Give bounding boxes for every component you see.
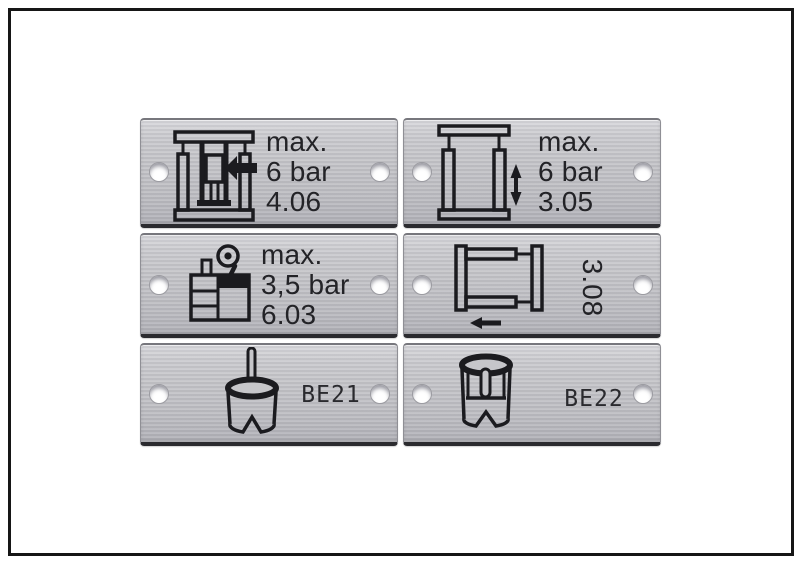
label-plates-grid: max. 6 bar 4.06 m xyxy=(140,118,661,446)
part-number-label: BE21 xyxy=(289,382,373,408)
spec-line: 6 bar xyxy=(538,157,603,187)
mounting-hole xyxy=(633,384,653,404)
rotated-label: 3.08 xyxy=(577,253,607,323)
spec-line: 6 bar xyxy=(266,157,331,187)
spec-line: max. xyxy=(261,240,350,270)
mounting-hole xyxy=(412,162,432,182)
mounting-hole xyxy=(370,275,390,295)
press-icon xyxy=(171,127,259,223)
sleeve-tool-icon xyxy=(456,353,516,437)
plate-be22: BE22 xyxy=(403,343,661,446)
frame-horizontal-arrow-icon xyxy=(454,244,546,332)
plate-text: max. 6 bar 3.05 xyxy=(538,127,603,217)
mounting-hole xyxy=(370,162,390,182)
mounting-hole xyxy=(412,275,432,295)
mounting-hole xyxy=(149,162,169,182)
mounting-hole xyxy=(370,384,390,404)
mounting-hole xyxy=(149,275,169,295)
spec-line: max. xyxy=(538,127,603,157)
plate-frame-horizontal: 3.08 xyxy=(403,233,661,338)
reservoir-gauge-icon xyxy=(189,241,253,323)
spec-line: 3,5 bar xyxy=(261,270,350,300)
spec-line: max. xyxy=(266,127,331,157)
mounting-hole xyxy=(149,384,169,404)
plate-text: max. 3,5 bar 6.03 xyxy=(261,240,350,330)
part-number-label: BE22 xyxy=(552,386,636,412)
bell-tool-icon xyxy=(221,347,281,439)
mounting-hole xyxy=(633,162,653,182)
mounting-hole xyxy=(633,275,653,295)
frame-vertical-arrow-icon xyxy=(437,124,529,222)
mounting-hole xyxy=(412,384,432,404)
spec-line: 6.03 xyxy=(261,300,350,330)
plate-text: max. 6 bar 4.06 xyxy=(266,127,331,217)
plate-be21: BE21 xyxy=(140,343,398,446)
plate-frame-vertical: max. 6 bar 3.05 xyxy=(403,118,661,228)
spec-line: 3.05 xyxy=(538,187,603,217)
plate-press: max. 6 bar 4.06 xyxy=(140,118,398,228)
spec-line: 4.06 xyxy=(266,187,331,217)
plate-reservoir-gauge: max. 3,5 bar 6.03 xyxy=(140,233,398,338)
